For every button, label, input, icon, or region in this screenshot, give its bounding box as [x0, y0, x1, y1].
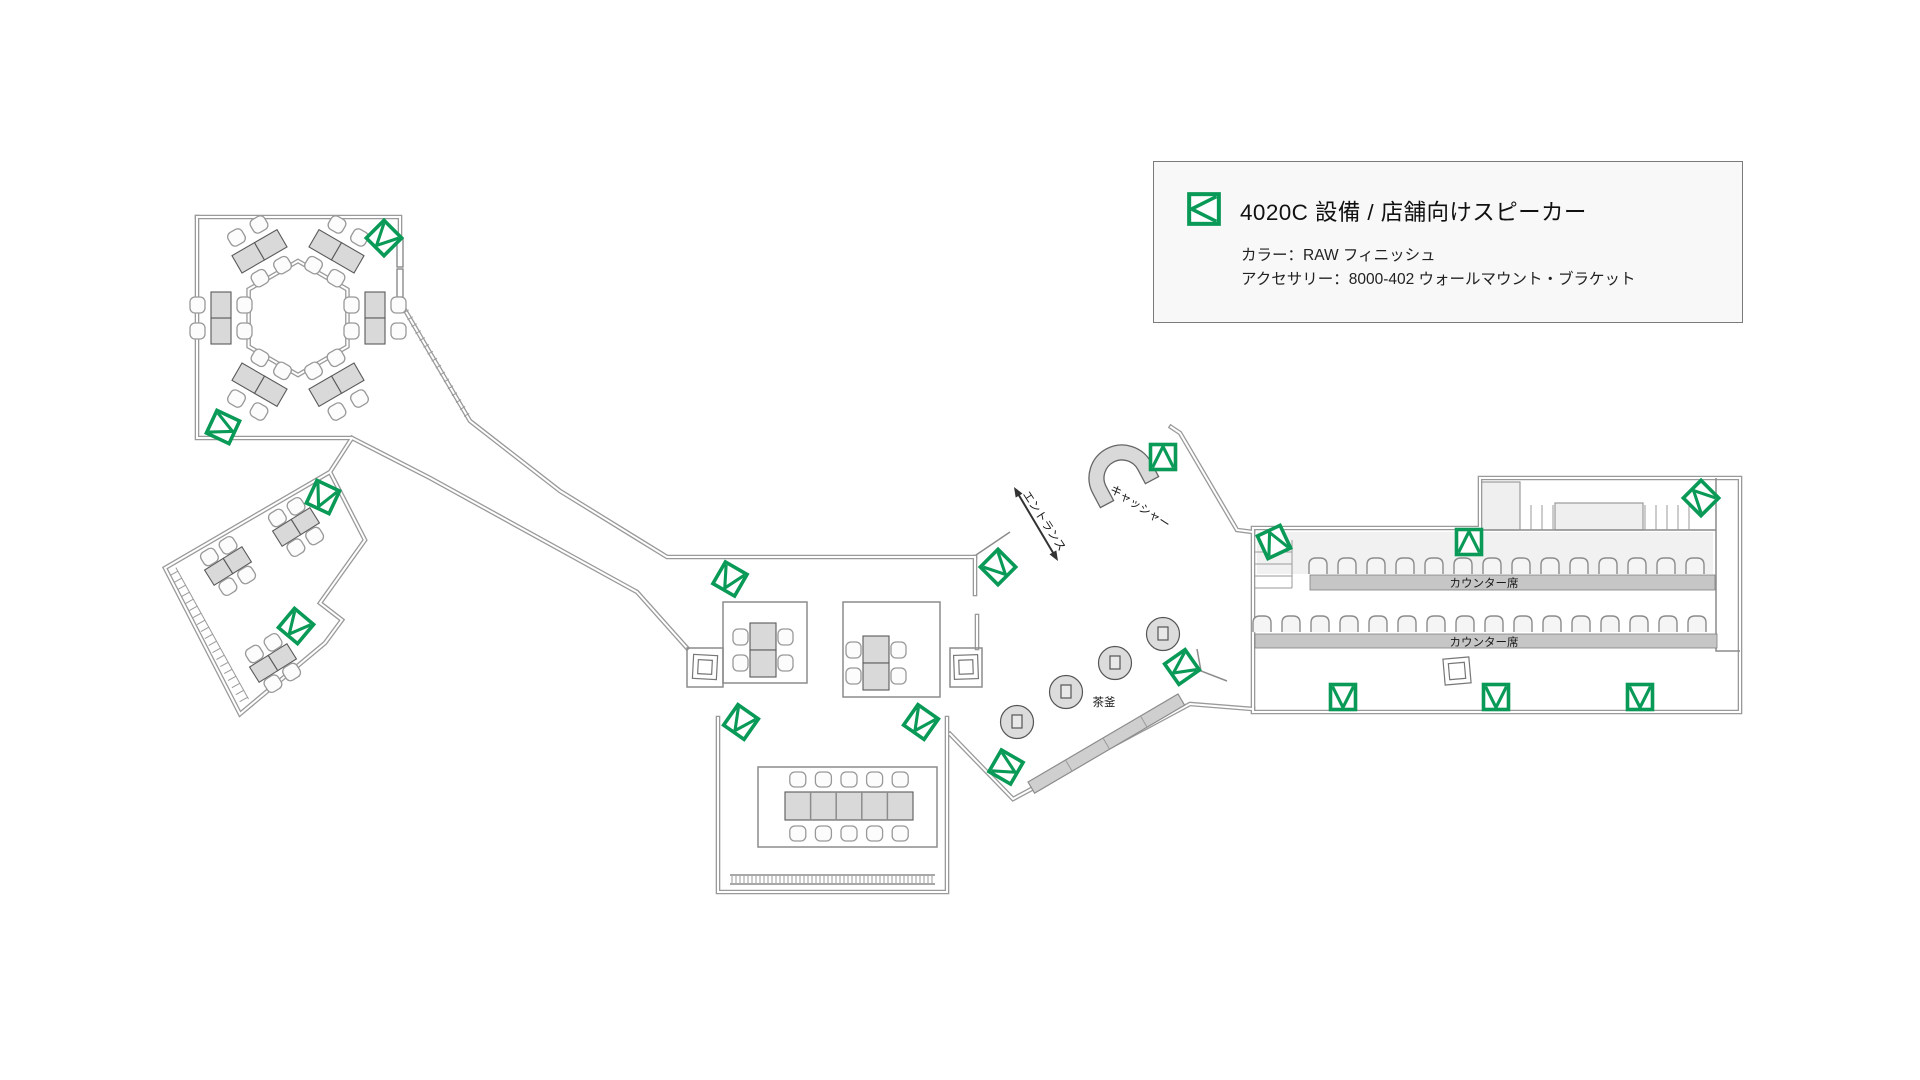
chair	[815, 772, 831, 787]
counter-stool	[1512, 558, 1530, 574]
chair	[778, 629, 793, 645]
counter-stool	[1686, 558, 1704, 574]
chair	[778, 655, 793, 671]
counter-stool	[1367, 558, 1385, 574]
label-entrance: エントランス	[1020, 489, 1068, 553]
counter-stool	[1454, 558, 1472, 574]
chair	[190, 297, 205, 313]
chair	[892, 772, 908, 787]
round-stool	[1001, 706, 1034, 739]
counter-stool	[1541, 558, 1559, 574]
chair	[237, 323, 252, 339]
counter-stool	[1485, 616, 1503, 632]
counter-stool	[1311, 616, 1329, 632]
speaker-marker	[713, 562, 747, 596]
counter-stool	[1425, 558, 1443, 574]
speaker-marker	[278, 608, 313, 643]
counter-stool	[1282, 616, 1300, 632]
speaker-marker	[724, 705, 759, 740]
chair	[891, 668, 906, 684]
meeting-table-4	[846, 636, 906, 690]
chair	[226, 227, 247, 248]
hex-table-group	[344, 292, 406, 344]
speaker-marker	[1457, 530, 1482, 555]
speaker-marker	[904, 705, 939, 740]
counter-stool	[1543, 616, 1561, 632]
speaker-marker	[366, 220, 401, 255]
counter-stool	[1398, 616, 1416, 632]
chair	[190, 323, 205, 339]
counter-stool	[1427, 616, 1445, 632]
counter-stool	[1572, 616, 1590, 632]
chair	[226, 388, 247, 409]
hex-table-group	[298, 345, 374, 425]
chair	[841, 772, 857, 787]
counter-stool	[1657, 558, 1675, 574]
counter-stool	[1599, 558, 1617, 574]
counter-stool	[1514, 616, 1532, 632]
label-cashier: キャッシャー	[1107, 484, 1171, 532]
long-meeting-table	[785, 772, 913, 841]
chair	[326, 401, 347, 422]
legend-box: 4020C 設備 / 店舗向けスピーカー カラー：RAW フィニッシュ アクセサ…	[1153, 161, 1743, 323]
chair	[892, 826, 908, 841]
equipment-fixture	[1443, 657, 1471, 685]
chair	[391, 297, 406, 313]
hex-table-group	[221, 211, 297, 291]
chair	[349, 388, 370, 409]
chair	[733, 655, 748, 671]
chair	[867, 826, 883, 841]
legend-color-line: カラー：RAW フィニッシュ	[1241, 243, 1436, 265]
speaker-marker	[1331, 685, 1356, 710]
hex-table-group	[298, 211, 374, 291]
chair	[891, 642, 906, 658]
counter-stool	[1309, 558, 1327, 574]
counter-stool	[1628, 558, 1646, 574]
counter-stool-row	[1253, 616, 1706, 632]
counter-stool	[1456, 616, 1474, 632]
meeting-table-4	[733, 623, 793, 677]
speaker-marker	[1151, 445, 1176, 470]
chair	[815, 826, 831, 841]
chair	[841, 826, 857, 841]
round-stool	[1050, 676, 1083, 709]
label-tea-kettle: 茶釜	[1093, 695, 1116, 709]
speaker-marker	[1484, 685, 1509, 710]
chair	[846, 668, 861, 684]
chair	[344, 323, 359, 339]
speaker-marker	[980, 549, 1015, 584]
chair	[391, 323, 406, 339]
counter-stool	[1601, 616, 1619, 632]
speaker-plan-symbol-icon	[1185, 190, 1223, 228]
chair	[237, 297, 252, 313]
chair	[790, 772, 806, 787]
chair	[790, 826, 806, 841]
counter-stool	[1369, 616, 1387, 632]
counter-stool	[1253, 616, 1271, 632]
counter-stool	[1396, 558, 1414, 574]
chair	[248, 401, 269, 422]
chair	[733, 629, 748, 645]
round-stool	[1147, 618, 1180, 651]
legend-accessory-line: アクセサリー：8000-402 ウォールマウント・ブラケット	[1241, 267, 1636, 289]
equipment-fixture	[692, 654, 717, 679]
counter-stool	[1659, 616, 1677, 632]
counter-stool	[1570, 558, 1588, 574]
label-counter-2: カウンター席	[1450, 635, 1519, 649]
chair	[867, 772, 883, 787]
label-counter-1: カウンター席	[1450, 576, 1519, 590]
counter-stool	[1340, 616, 1358, 632]
speaker-marker	[1165, 650, 1200, 685]
chair	[344, 297, 359, 313]
chair	[846, 642, 861, 658]
counter-stool	[1338, 558, 1356, 574]
hex-table-group	[221, 345, 297, 425]
plan-labels: エントランスキャッシャー茶釜カウンター席カウンター席	[1020, 484, 1519, 709]
floor-plan-page: エントランスキャッシャー茶釜カウンター席カウンター席 4020C 設備 / 店舗…	[0, 0, 1920, 1080]
counter-stool	[1483, 558, 1501, 574]
equipment-fixture	[954, 655, 979, 680]
legend-title: 4020C 設備 / 店舗向けスピーカー	[1240, 195, 1587, 227]
round-stool	[1099, 647, 1132, 680]
counter-stool	[1688, 616, 1706, 632]
speaker-marker	[1628, 685, 1653, 710]
counter-stool	[1630, 616, 1648, 632]
